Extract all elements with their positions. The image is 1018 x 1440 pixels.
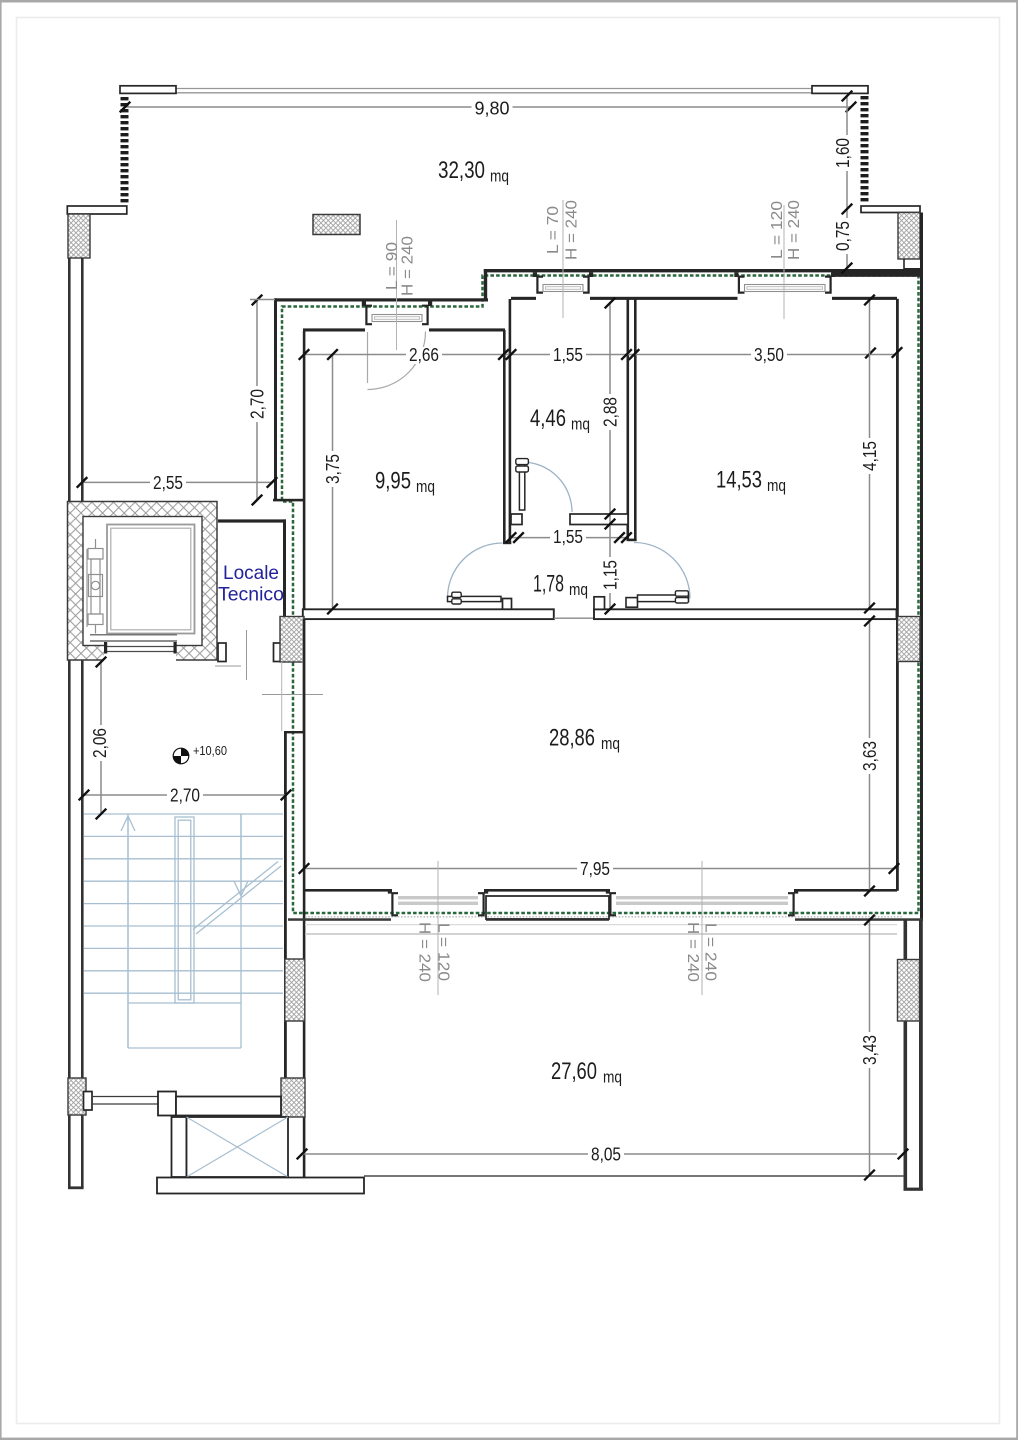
svg-text:H = 240: H = 240 (400, 236, 417, 296)
svg-text:H = 240: H = 240 (415, 922, 432, 982)
svg-text:4,46: 4,46 (530, 405, 566, 432)
svg-text:mq: mq (569, 580, 588, 599)
svg-text:H = 240: H = 240 (564, 200, 581, 260)
svg-text:2,66: 2,66 (409, 344, 439, 365)
svg-text:8,05: 8,05 (591, 1144, 621, 1165)
svg-text:2,88: 2,88 (600, 397, 621, 427)
svg-text:28,86: 28,86 (549, 725, 595, 752)
svg-text:3,63: 3,63 (859, 741, 880, 771)
svg-text:9,80: 9,80 (475, 98, 510, 119)
svg-text:H = 240: H = 240 (684, 922, 701, 982)
svg-text:2,70: 2,70 (170, 785, 200, 806)
svg-text:1,78: 1,78 (533, 571, 564, 598)
svg-text:L = 120: L = 120 (769, 201, 786, 259)
svg-text:mq: mq (490, 167, 509, 186)
svg-text:L = 120: L = 120 (435, 923, 452, 981)
svg-text:27,60: 27,60 (551, 1058, 597, 1085)
svg-text:L = 70: L = 70 (545, 206, 562, 254)
svg-text:Tecnico: Tecnico (218, 584, 284, 606)
svg-text:H = 240: H = 240 (786, 200, 803, 260)
svg-text:14,53: 14,53 (716, 467, 762, 494)
svg-text:2,06: 2,06 (89, 728, 110, 758)
svg-text:2,55: 2,55 (153, 472, 183, 493)
svg-text:3,43: 3,43 (859, 1035, 880, 1065)
svg-text:3,75: 3,75 (322, 454, 343, 484)
svg-text:2,70: 2,70 (247, 389, 268, 419)
svg-text:Locale: Locale (223, 562, 279, 584)
svg-text:4,15: 4,15 (859, 441, 880, 471)
svg-text:mq: mq (767, 476, 786, 495)
svg-text:L = 240: L = 240 (701, 923, 718, 981)
svg-text:mq: mq (416, 477, 435, 496)
svg-text:1,15: 1,15 (600, 560, 621, 590)
svg-text:mq: mq (571, 415, 590, 434)
svg-text:1,55: 1,55 (553, 526, 583, 547)
svg-text:0,75: 0,75 (832, 221, 853, 251)
svg-text:1,60: 1,60 (832, 138, 853, 168)
svg-text:1,55: 1,55 (553, 344, 583, 365)
svg-text:32,30: 32,30 (438, 157, 485, 184)
svg-text:3,50: 3,50 (754, 344, 784, 365)
svg-text:+10,60: +10,60 (193, 744, 227, 758)
svg-text:mq: mq (601, 734, 620, 753)
svg-text:7,95: 7,95 (580, 858, 610, 879)
svg-text:9,95: 9,95 (375, 468, 411, 495)
svg-text:mq: mq (603, 1068, 622, 1087)
